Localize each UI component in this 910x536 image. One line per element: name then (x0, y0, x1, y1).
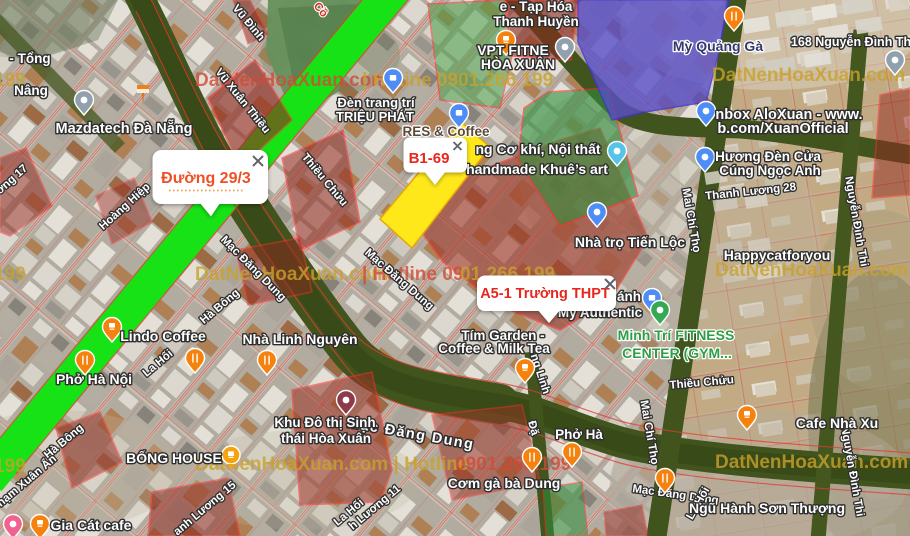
svg-text:Phở Hà: Phở Hà (555, 427, 603, 442)
svg-text:DatNenHoaXuan.com | H: DatNenHoaXuan.com | H (715, 452, 910, 473)
svg-text:- Tổng: - Tổng (9, 51, 50, 66)
svg-text:HÒA XUÂN: HÒA XUÂN (481, 55, 555, 72)
svg-text:Mỳ Quảng Gà: Mỳ Quảng Gà (673, 38, 763, 54)
svg-text:Cúng Ngọc Anh: Cúng Ngọc Anh (719, 163, 820, 178)
svg-text:Mazdatech Đà Nẵng: Mazdatech Đà Nẵng (56, 119, 193, 137)
svg-text:DatNenHoaXuan.com | H: DatNenHoaXuan.com | H (715, 260, 910, 281)
svg-text:DatNenHoaXuan.com: DatNenHoaXuan.com (195, 264, 388, 285)
svg-text:handmade Khuê’s art: handmade Khuê’s art (466, 161, 608, 177)
svg-text:e - Tạp Hóa: e - Tạp Hóa (500, 0, 573, 14)
svg-text:Thanh Huyền: Thanh Huyền (493, 14, 579, 29)
svg-text:Ngũ Hành Sơn Thượng: Ngũ Hành Sơn Thượng (689, 500, 845, 516)
svg-text:Phở Hà Nội: Phở Hà Nội (56, 371, 132, 387)
svg-text:RES & Coffee: RES & Coffee (402, 124, 490, 139)
svg-text:199: 199 (0, 264, 26, 285)
svg-text:TRIỆU PHÁT: TRIỆU PHÁT (336, 109, 414, 124)
svg-text:Minh Trí FITNESS: Minh Trí FITNESS (618, 327, 735, 343)
svg-text:CENTER (GYM...: CENTER (GYM... (622, 345, 732, 361)
svg-text:A5-1 Trường THPT: A5-1 Trường THPT (480, 286, 610, 302)
svg-text:Nhà Linh Nguyên: Nhà Linh Nguyên (242, 331, 357, 347)
svg-text:Khu Đô thị Sinh: Khu Đô thị Sinh (274, 415, 375, 430)
svg-text:168 Nguyễn Đình Th: 168 Nguyễn Đình Th (791, 34, 910, 49)
svg-text:Cơm gà bà Dung: Cơm gà bà Dung (448, 475, 561, 491)
svg-text:thái Hòa Xuân: thái Hòa Xuân (281, 431, 371, 446)
svg-text:199: 199 (0, 456, 26, 477)
svg-text:ng Cơ khí, Nội thất: ng Cơ khí, Nội thất (475, 141, 600, 157)
svg-text:b.com/XuanOfficial: b.com/XuanOfficial (717, 121, 848, 137)
svg-text:Đường 29/3: Đường 29/3 (161, 170, 251, 187)
svg-text:0901.266.199: 0901.266.199 (455, 454, 571, 475)
svg-text:Lindo Coffee: Lindo Coffee (120, 328, 206, 344)
svg-text:B1-69: B1-69 (409, 150, 450, 167)
svg-text:Nâng: Nâng (14, 83, 48, 98)
svg-text:ánh: ánh (617, 289, 641, 304)
svg-text:DatNenHoaXuan.com | H: DatNenHoaXuan.com | H (712, 65, 910, 86)
svg-text:BỐNG HOUSE: BỐNG HOUSE (126, 449, 222, 466)
svg-text:Hương Đèn Cửa: Hương Đèn Cửa (715, 149, 821, 164)
svg-text:Gia Cát cafe: Gia Cát cafe (51, 517, 132, 533)
svg-text:Happycatforyou: Happycatforyou (724, 247, 831, 263)
svg-text:Cafe Nhà Xu: Cafe Nhà Xu (796, 415, 878, 431)
svg-text:Đèn trang trí: Đèn trang trí (337, 95, 415, 110)
svg-text:Nhà trọ Tiến Lộc: Nhà trọ Tiến Lộc (575, 234, 685, 250)
svg-text:Coffee & Milk Tea: Coffee & Milk Tea (438, 341, 550, 356)
